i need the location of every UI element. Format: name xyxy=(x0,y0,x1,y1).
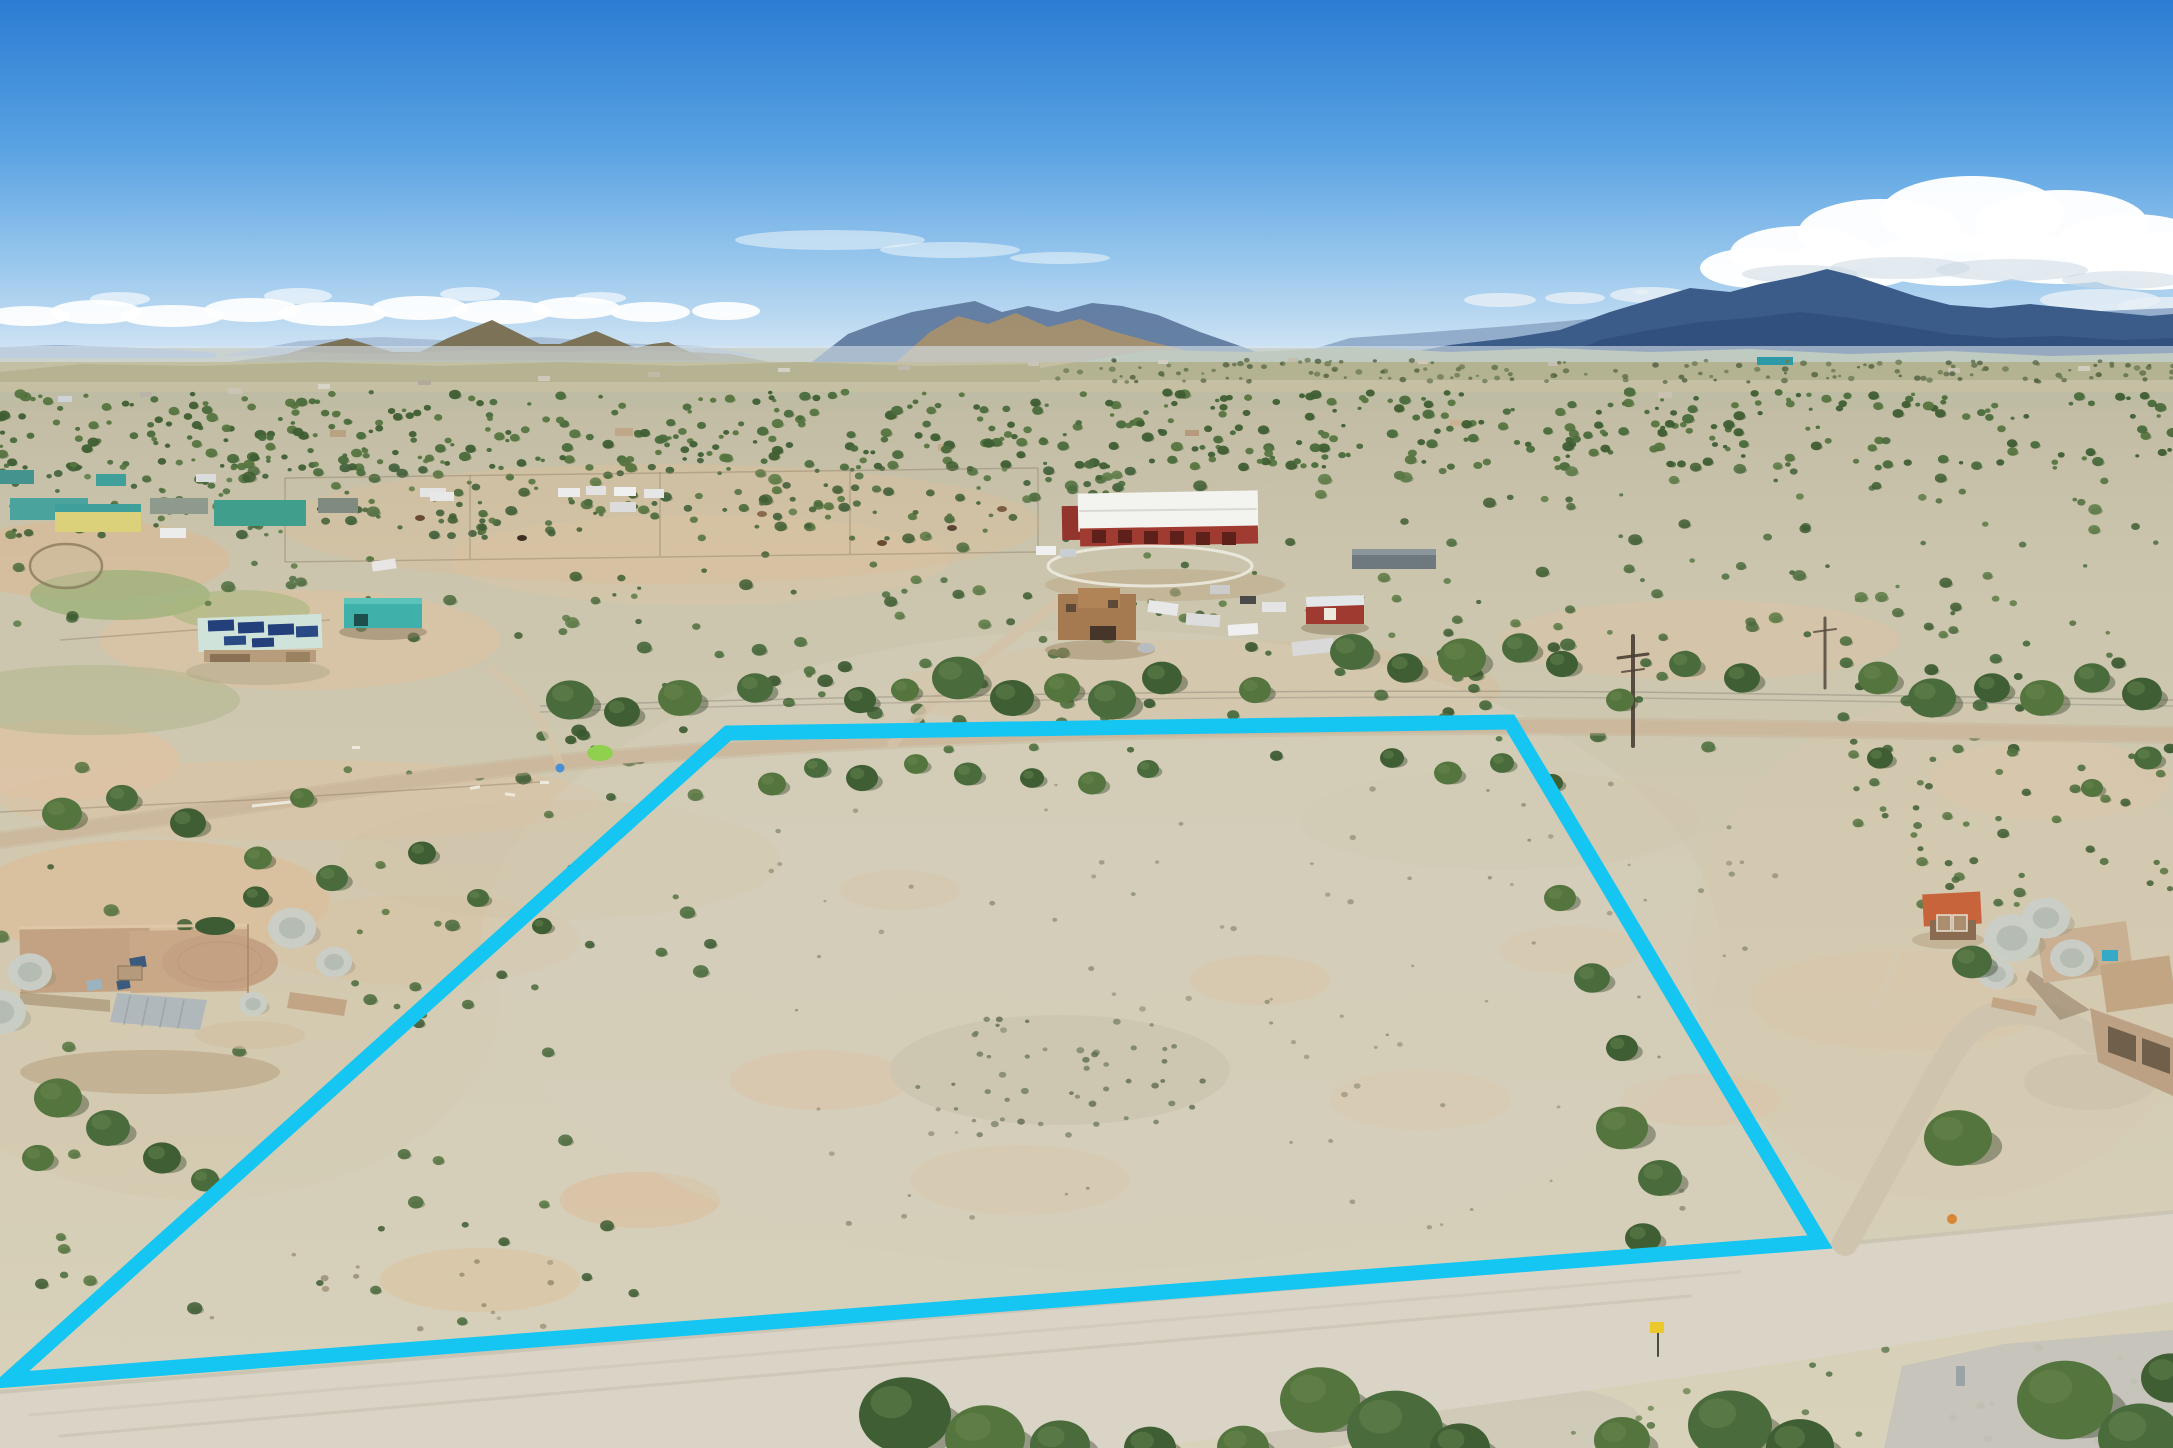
distant-building xyxy=(648,372,660,377)
horse xyxy=(517,535,527,541)
aerial-photo-svg xyxy=(0,0,2173,1448)
horse xyxy=(947,525,957,531)
distant-building xyxy=(1418,360,1428,364)
aerial-photo xyxy=(0,0,2173,1448)
horse xyxy=(757,511,767,517)
distant-building xyxy=(58,396,72,402)
green-tank xyxy=(587,745,613,761)
distant-building xyxy=(778,368,790,372)
distant-building xyxy=(140,392,152,397)
distant-building xyxy=(1158,360,1168,364)
distant-building xyxy=(418,380,431,385)
distant-building xyxy=(228,388,242,394)
distant-building xyxy=(318,384,330,389)
teal-barn xyxy=(339,598,427,640)
distant-building xyxy=(330,430,346,437)
red-barn xyxy=(1301,595,1369,635)
distant-building xyxy=(1658,392,1672,398)
horizon-haze xyxy=(0,346,2173,362)
distant-building xyxy=(898,366,910,370)
horse xyxy=(415,515,425,521)
distant-building xyxy=(2078,366,2090,371)
horse xyxy=(877,540,887,546)
grey-shed-row xyxy=(1352,549,1436,569)
distant-building xyxy=(615,428,633,436)
distant-building xyxy=(1548,362,1558,366)
distant-building xyxy=(1028,362,1039,366)
horse xyxy=(997,506,1007,512)
distant-building xyxy=(1185,430,1199,436)
distant-building xyxy=(1288,358,1298,362)
distant-building xyxy=(538,376,550,381)
